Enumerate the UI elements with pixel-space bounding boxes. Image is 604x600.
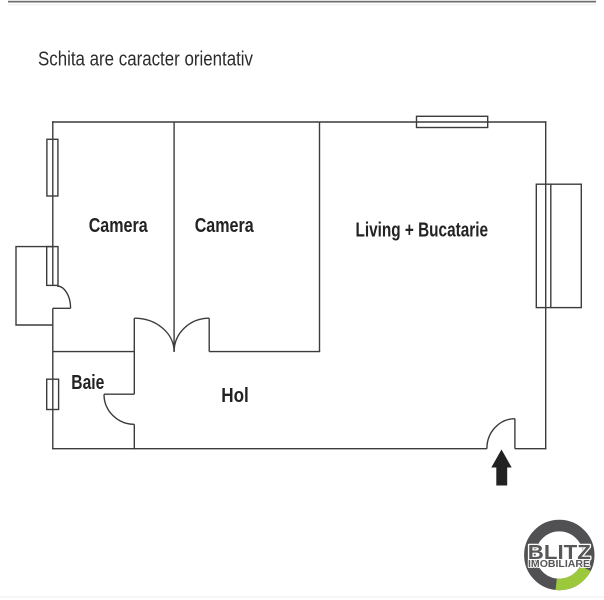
svg-text:Schita are caracter orientativ: Schita are caracter orientativ <box>38 48 254 71</box>
svg-text:Hol: Hol <box>221 385 249 407</box>
svg-text:Camera: Camera <box>195 215 255 237</box>
svg-text:Baie: Baie <box>71 372 104 394</box>
svg-text:IMOBILIARE: IMOBILIARE <box>528 559 590 570</box>
svg-text:Living + Bucatarie: Living + Bucatarie <box>356 220 489 242</box>
svg-text:Camera: Camera <box>89 215 149 237</box>
